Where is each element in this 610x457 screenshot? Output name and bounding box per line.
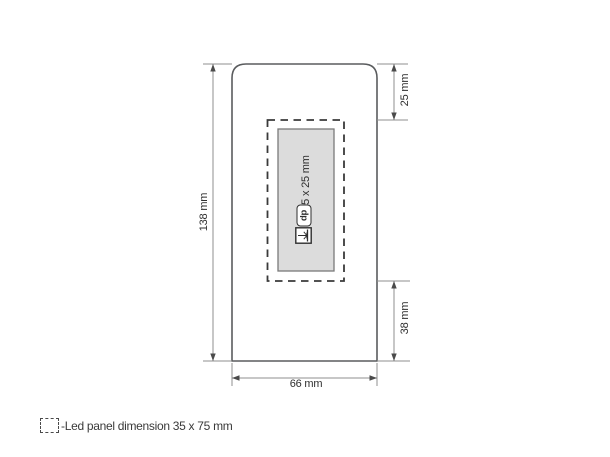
dimension-label-bottom-offset: 38 mm xyxy=(398,293,412,343)
dimension-label-height: 138 mm xyxy=(197,182,211,242)
legend-label: -Led panel dimension 35 x 75 mm xyxy=(61,419,232,433)
laser-engraving-glyph xyxy=(295,227,312,244)
legend: -Led panel dimension 35 x 75 mm xyxy=(40,418,232,433)
dimension-label-top-offset: 25 mm xyxy=(398,65,412,115)
led-panel-legend-swatch xyxy=(40,418,59,433)
digital-print-icon-text: dp xyxy=(299,210,309,221)
laser-engraving-icon xyxy=(295,227,312,244)
digital-print-icon: dp xyxy=(297,205,312,227)
dimension-label-width: 66 mm xyxy=(276,377,336,391)
technical-drawing: 138 mm 25 mm 38 mm 66 mm 65 x 25 mm dp -… xyxy=(0,0,610,457)
